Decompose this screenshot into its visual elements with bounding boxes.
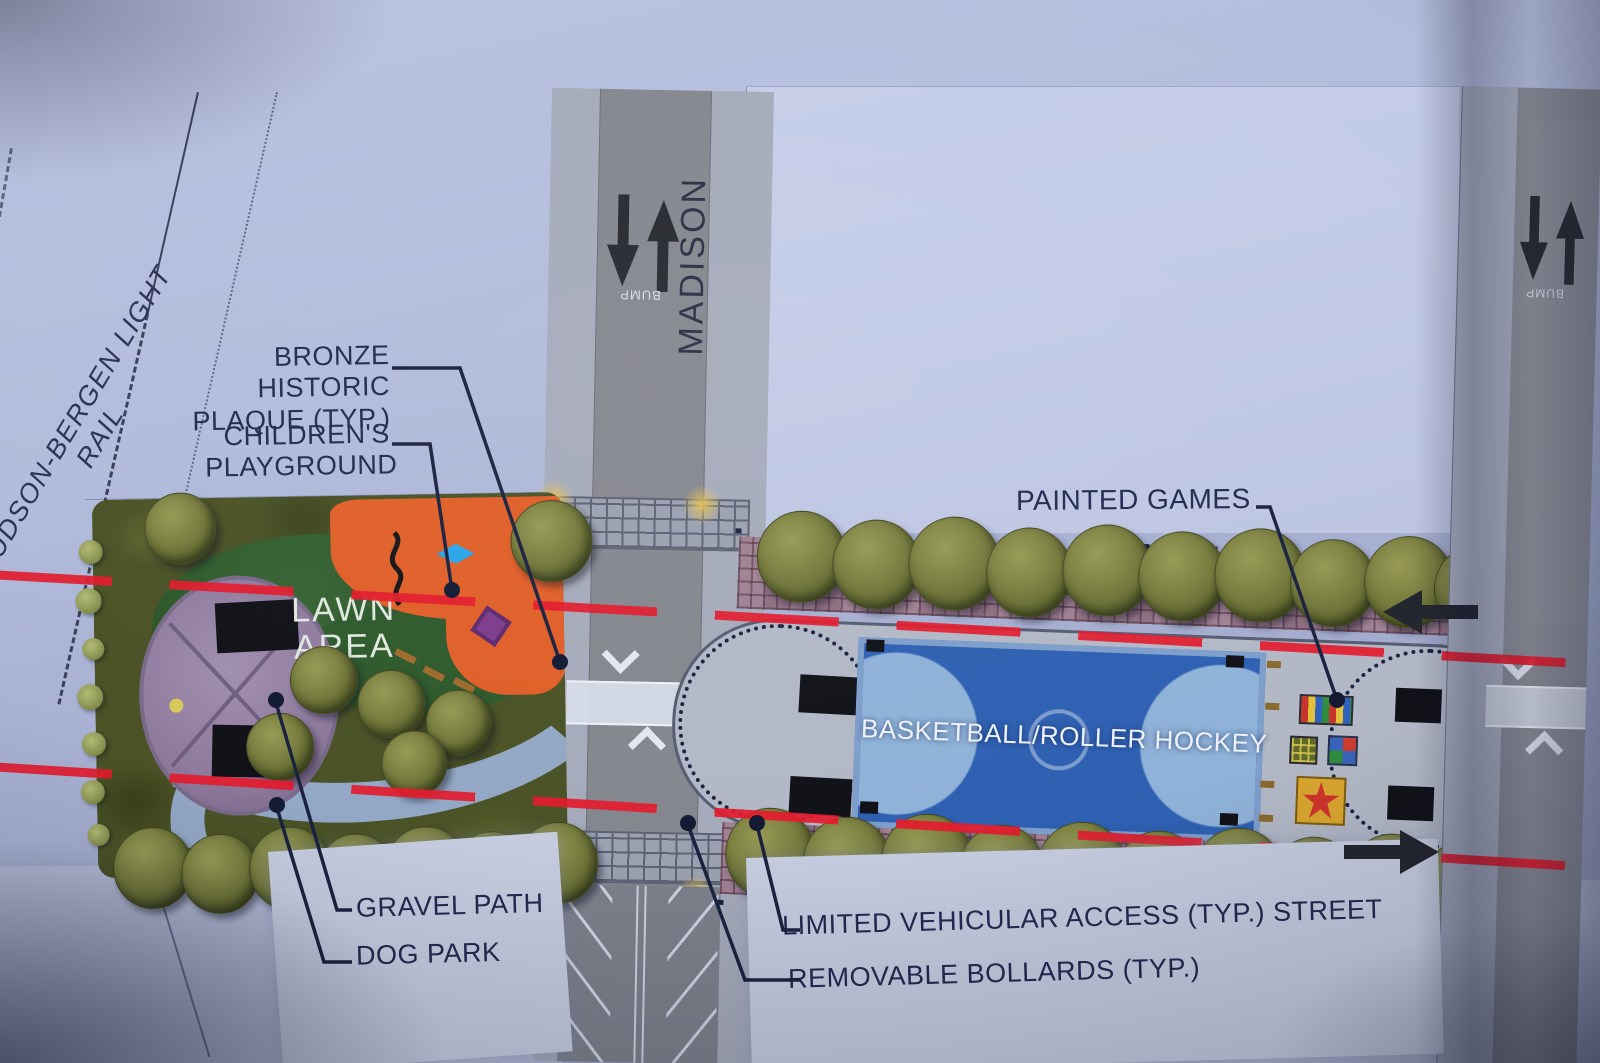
limited-access-leader xyxy=(757,825,800,930)
site-plan-photo: HUDSON-BERGEN LIGHT RAIL MADISON BUMP xyxy=(0,0,1600,1063)
leader-dot xyxy=(444,582,460,598)
bronze-plaque-leader xyxy=(392,368,560,662)
leader-dot xyxy=(268,692,284,708)
leader-dot xyxy=(680,815,696,831)
gravel-path-leader xyxy=(276,703,352,910)
leader-dot xyxy=(749,815,765,831)
one-way-arrow-east-icon xyxy=(1344,830,1439,874)
painted-games-leader xyxy=(1256,507,1337,700)
one-way-arrow-west-icon xyxy=(1383,590,1478,634)
removable-bollards-leader xyxy=(688,825,800,980)
leader-dot xyxy=(1329,692,1345,708)
childrens-playground-leader xyxy=(392,444,452,590)
leader-lines-overlay xyxy=(0,0,1600,1063)
leader-dot xyxy=(552,654,568,670)
leader-dot xyxy=(269,797,285,813)
